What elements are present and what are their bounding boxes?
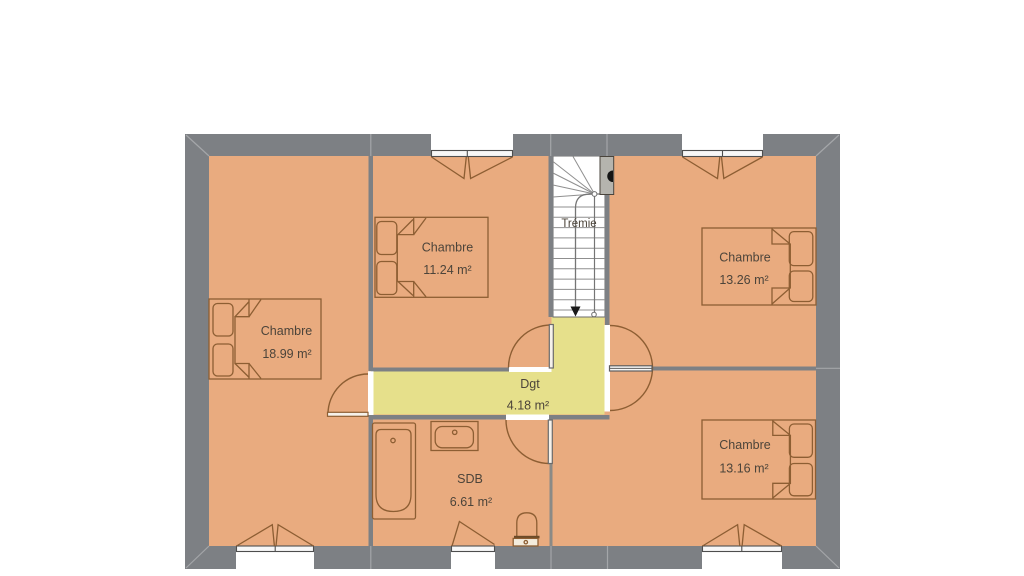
- svg-text:13.16 m²: 13.16 m²: [719, 462, 768, 476]
- svg-text:Chambre: Chambre: [261, 324, 312, 338]
- svg-text:Chambre: Chambre: [422, 241, 473, 255]
- svg-text:SDB: SDB: [457, 472, 483, 486]
- svg-text:11.24 m²: 11.24 m²: [423, 263, 471, 277]
- svg-text:4.18 m²: 4.18 m²: [507, 399, 549, 413]
- svg-text:13.26 m²: 13.26 m²: [719, 273, 768, 287]
- svg-text:Trémie: Trémie: [561, 218, 596, 230]
- svg-text:6.61 m²: 6.61 m²: [450, 495, 492, 509]
- svg-text:Chambre: Chambre: [719, 251, 770, 265]
- svg-text:Chambre: Chambre: [719, 438, 770, 452]
- svg-text:Dgt: Dgt: [520, 377, 540, 391]
- svg-text:18.99 m²: 18.99 m²: [262, 347, 311, 361]
